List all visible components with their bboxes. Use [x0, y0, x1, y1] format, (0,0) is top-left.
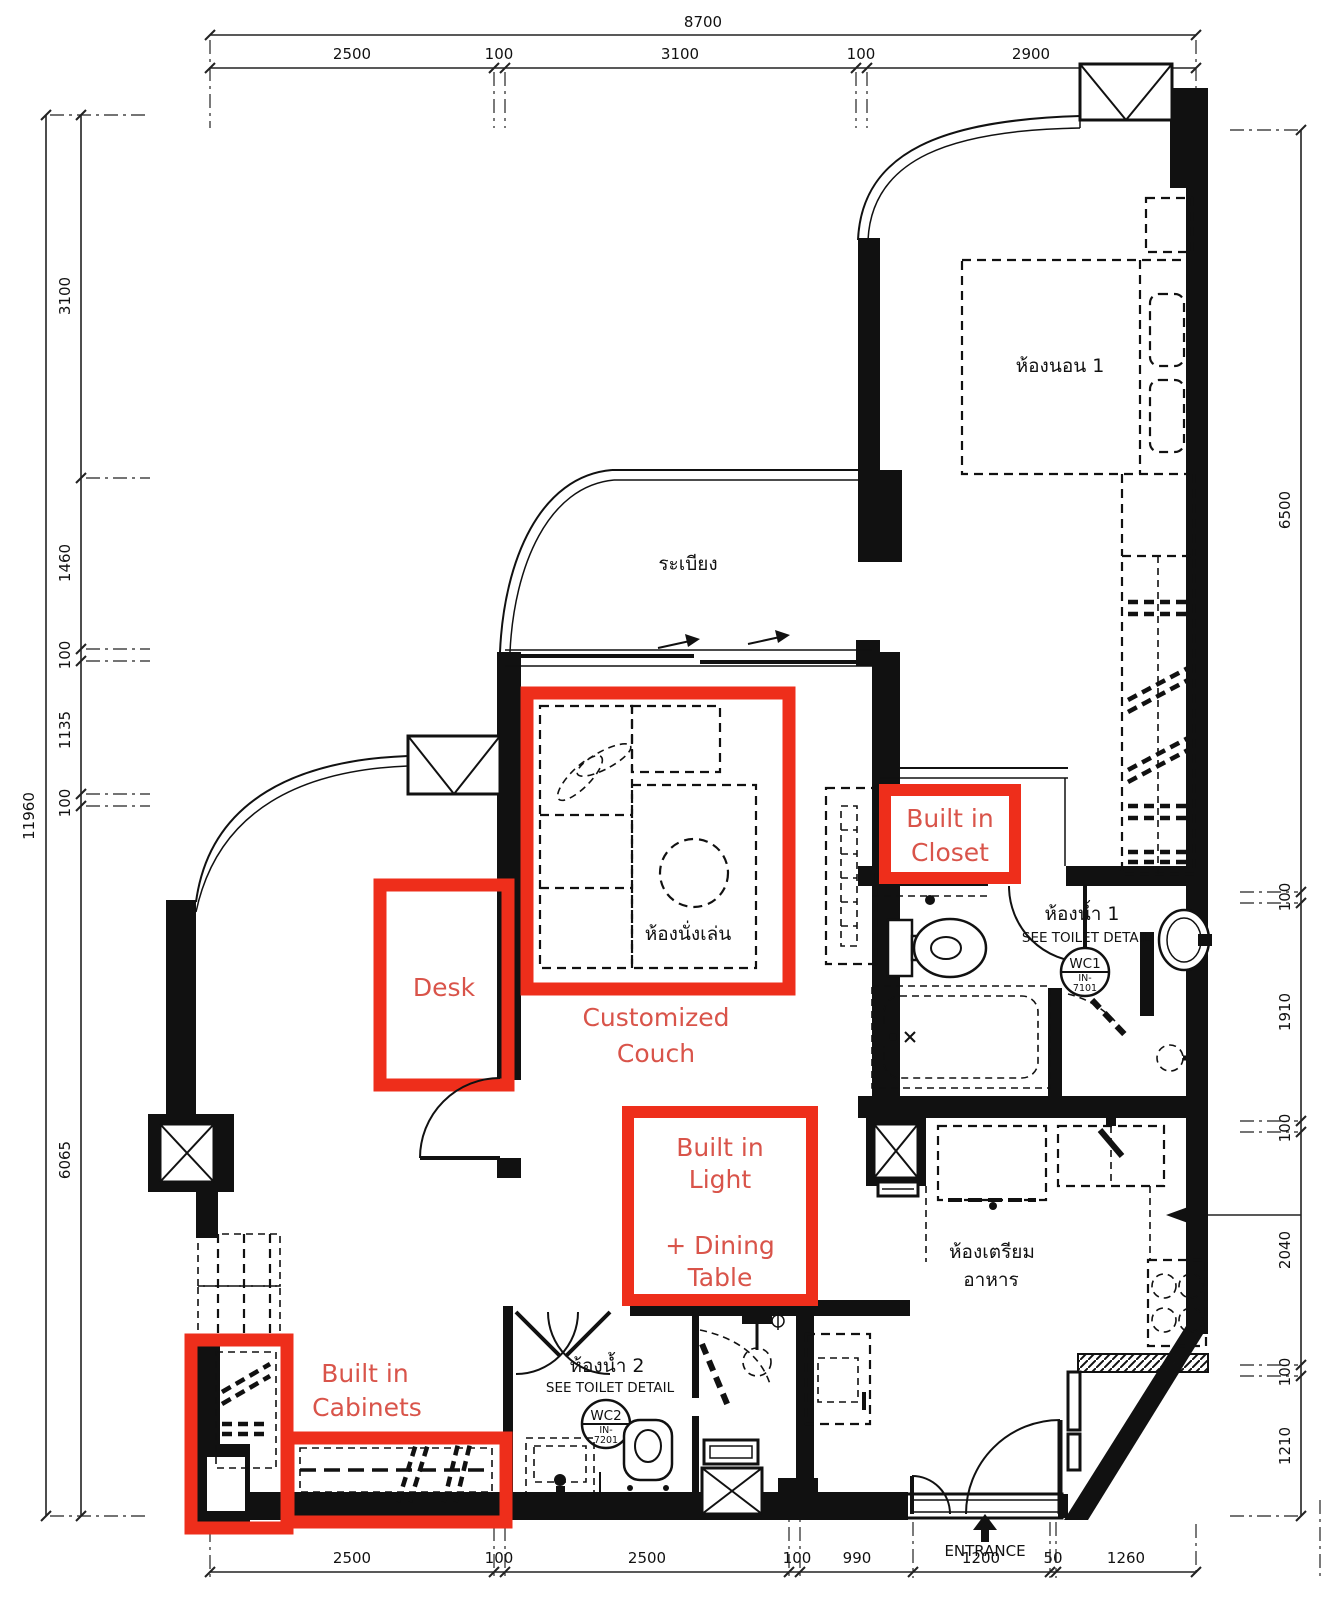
- bathroom1: ห้องน้ำ 1 SEE TOILET DETAIL WC1 IN- 7101: [872, 886, 1212, 1088]
- bathroom2: ห้องน้ำ 2 SEE TOILET DETAIL WC2 IN- 7201: [516, 1312, 870, 1514]
- dim-top-total: 8700: [684, 13, 722, 31]
- shower-2: [692, 1312, 784, 1492]
- dim-top-2: 3100: [661, 45, 699, 63]
- bathroom1-code2: 7101: [1073, 983, 1097, 994]
- sink-2: [1157, 1045, 1183, 1071]
- dim-left-5: 6065: [56, 1141, 74, 1179]
- dim-bottom-6: 50: [1043, 1549, 1062, 1567]
- dim-left-total: 11960: [20, 792, 38, 840]
- dim-right-0: 6500: [1276, 491, 1294, 529]
- bedroom1-label: ห้องนอน 1: [1016, 355, 1105, 377]
- dim-bottom-2: 2500: [628, 1549, 666, 1567]
- walls: [148, 88, 1208, 1530]
- floor-plan-drawing: 8700 2500 100 3100 100 2900 11960 3100: [0, 0, 1343, 1600]
- bathroom2-label: ห้องน้ำ 2: [570, 1352, 645, 1377]
- entrance: ENTRANCE: [898, 1420, 1068, 1560]
- shaft-symbol-left-room: [408, 736, 500, 794]
- bathroom1-wc-label: WC1: [1069, 956, 1100, 972]
- bedroom1: ห้องนอน 1: [962, 198, 1192, 474]
- shaft-symbol-top-right: [1080, 64, 1172, 120]
- bathroom1-note: SEE TOILET DETAIL: [1022, 930, 1151, 946]
- balcony-label: ระเบียง: [658, 553, 717, 575]
- kitchen-label-line2: อาหาร: [963, 1269, 1018, 1291]
- dim-left-0: 3100: [56, 277, 74, 315]
- bathroom1-label: ห้องน้ำ 1: [1045, 900, 1120, 925]
- dim-right-2: 1910: [1276, 993, 1294, 1031]
- dim-left-4: 100: [56, 789, 74, 818]
- living-room-label: ห้องนั่งเล่น: [645, 920, 732, 945]
- fridge: [1058, 1114, 1164, 1186]
- kitchen: ห้องเตรียม อาหาร: [866, 1114, 1206, 1346]
- kitchen-counter: [938, 1126, 1046, 1210]
- couch-annotation-line1: Customized: [582, 1003, 729, 1032]
- balcony: ระเบียง: [505, 553, 872, 666]
- light-annotation: Built in Light + Dining Table: [628, 1112, 812, 1300]
- light-annotation-line4: Table: [687, 1263, 753, 1292]
- desk-annotation-label: Desk: [413, 973, 476, 1002]
- dim-top-1: 100: [485, 45, 514, 63]
- dim-bottom-0: 2500: [333, 1549, 371, 1567]
- entrance-label: ENTRANCE: [944, 1542, 1025, 1560]
- desk-annotation: Desk: [380, 885, 508, 1085]
- kitchen-shaft: [866, 1116, 926, 1196]
- dim-top-4: 2900: [1012, 45, 1050, 63]
- kitchen-label-line1: ห้องเตรียม: [949, 1241, 1035, 1263]
- light-annotation-line3: + Dining: [665, 1231, 775, 1260]
- couch-annotation-line2: Couch: [617, 1039, 695, 1068]
- dim-right-5: 100: [1276, 1358, 1294, 1387]
- cabinets-annotation-line1: Built in: [321, 1359, 408, 1388]
- bathroom2-wc-label: WC2: [590, 1408, 621, 1424]
- cabinets-annotation-line2: Cabinets: [312, 1393, 422, 1422]
- bathroom2-note: SEE TOILET DETAIL: [546, 1380, 675, 1396]
- dim-right-3: 100: [1276, 1114, 1294, 1143]
- closet-annotation-line2: Closet: [911, 838, 989, 867]
- dim-right-1: 100: [1276, 883, 1294, 912]
- closet-annotation-line1: Built in: [906, 804, 993, 833]
- dim-bottom-3: 100: [783, 1549, 812, 1567]
- dim-right-6: 1210: [1276, 1427, 1294, 1465]
- closet-annotation: Built in Closet: [885, 790, 1015, 878]
- round-table: [660, 839, 728, 907]
- windows: [408, 64, 1172, 794]
- living-room: ห้องนั่งเล่น Customized Couch: [527, 693, 789, 1068]
- toilet-2: [624, 1420, 672, 1491]
- floor-plan-page: 8700 2500 100 3100 100 2900 11960 3100: [0, 0, 1343, 1600]
- dim-top-0: 2500: [333, 45, 371, 63]
- bathroom1-wc-tag: WC1 IN- 7101: [1061, 948, 1109, 996]
- bathroom2-code2: 7201: [594, 1435, 618, 1446]
- dim-top-3: 100: [847, 45, 876, 63]
- dim-bottom-4: 990: [843, 1549, 872, 1567]
- closet-right: [1122, 474, 1194, 874]
- sliding-door-arrow-2: [748, 630, 790, 644]
- light-annotation-line1: Built in: [676, 1133, 763, 1162]
- shoe-cabinet: [806, 1334, 870, 1424]
- shower-1: [1068, 994, 1203, 1071]
- dimension-top: 8700 2500 100 3100 100 2900: [205, 13, 1201, 128]
- dim-left-2: 100: [56, 641, 74, 670]
- sliding-door-arrow-1: [658, 634, 700, 648]
- light-annotation-line2: Light: [689, 1165, 752, 1194]
- dimension-left: 11960 3100 1460 100 1135 100 6065: [20, 110, 150, 1521]
- dim-left-3: 1135: [56, 711, 74, 749]
- dim-bottom-1: 100: [485, 1549, 514, 1567]
- dim-right-4: 2040: [1276, 1231, 1294, 1269]
- dim-left-1: 1460: [56, 544, 74, 582]
- dim-bottom-7: 1260: [1107, 1549, 1145, 1567]
